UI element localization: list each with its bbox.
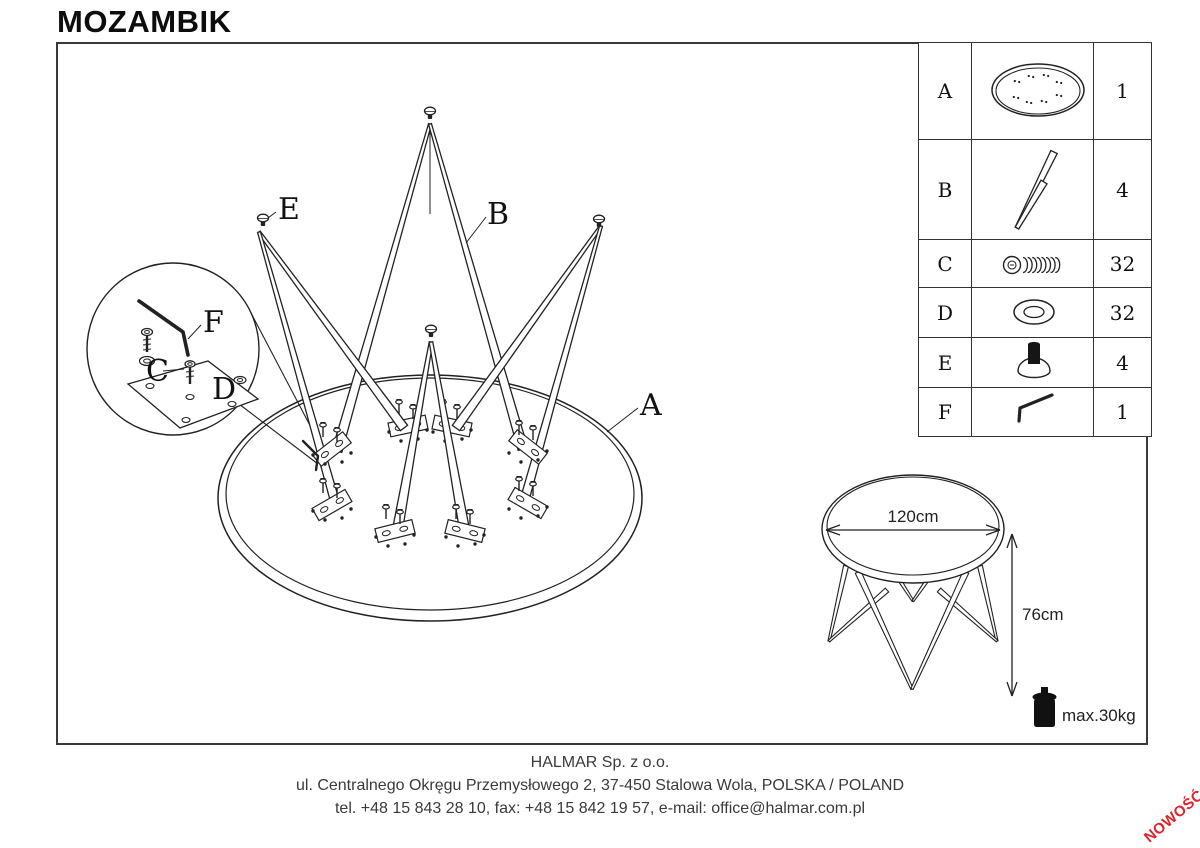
footer-address: ul. Centralnego Okręgu Przemysłowego 2, … [0, 774, 1200, 797]
foot-glide [426, 325, 437, 337]
parts-table: A 1B 4C 32D [918, 42, 1152, 437]
label-foot: E [278, 192, 300, 227]
label-leg: B [487, 197, 509, 232]
height-dimension: 76cm [1007, 534, 1064, 696]
part-qty: 32 [1094, 240, 1152, 288]
label-tabletop: A [639, 388, 662, 423]
tabletop-drawing [218, 375, 642, 621]
assembly-instruction-sheet: MOZAMBIK [0, 0, 1200, 848]
parts-table-row: F 1 [919, 388, 1152, 437]
parts-table-row: C 32 [919, 240, 1152, 288]
label-allen-key: F [203, 305, 224, 340]
new-badge-text: NOWOŚĆ [1141, 786, 1200, 845]
parts-table-row: E 4 [919, 338, 1152, 388]
part-qty: 4 [1094, 338, 1152, 388]
label-screw: C [146, 354, 169, 389]
label-washer: D [212, 372, 236, 407]
part-icon-cell [972, 43, 1094, 140]
part-qty: 32 [1094, 288, 1152, 338]
assembled-view: 120cm 76cm max.30kg [822, 475, 1136, 727]
part-icon-cell [972, 288, 1094, 338]
part-letter: D [919, 288, 972, 338]
part-icon-cell [972, 140, 1094, 240]
tabletop-icon [972, 43, 1093, 139]
foot-icon [972, 338, 1093, 387]
foot-glide [258, 214, 269, 226]
leg-icon [972, 140, 1093, 239]
weight-icon [1033, 687, 1057, 727]
part-letter: B [919, 140, 972, 240]
footer-company: HALMAR Sp. z o.o. [0, 751, 1200, 774]
part-icon-cell [972, 338, 1094, 388]
part-icon-cell [972, 388, 1094, 437]
max-load-label: max.30kg [1062, 706, 1136, 725]
assembled-leg-blade [828, 565, 848, 641]
parts-table-row: D 32 [919, 288, 1152, 338]
part-qty: 1 [1094, 388, 1152, 437]
assembled-leg-blade [978, 565, 998, 641]
part-qty: 4 [1094, 140, 1152, 240]
part-letter: F [919, 388, 972, 437]
part-letter: C [919, 240, 972, 288]
washer-icon [972, 288, 1093, 337]
part-letter: E [919, 338, 972, 388]
part-qty: 1 [1094, 43, 1152, 140]
foot-glide [425, 107, 436, 119]
parts-table-row: B 4 [919, 140, 1152, 240]
footer-contact: tel. +48 15 843 28 10, fax: +48 15 842 1… [0, 797, 1200, 820]
footer: HALMAR Sp. z o.o. ul. Centralnego Okręgu… [0, 751, 1200, 820]
product-title: MOZAMBIK [57, 4, 231, 40]
allen-key-icon [972, 388, 1093, 436]
screw-icon [972, 240, 1093, 287]
diameter-label: 120cm [887, 507, 938, 526]
part-letter: A [919, 43, 972, 140]
foot-glide [594, 215, 605, 227]
new-badge: NOWOŚĆ [1142, 786, 1200, 846]
height-label: 76cm [1022, 605, 1064, 624]
parts-table-row: A 1 [919, 43, 1152, 140]
part-icon-cell [972, 240, 1094, 288]
